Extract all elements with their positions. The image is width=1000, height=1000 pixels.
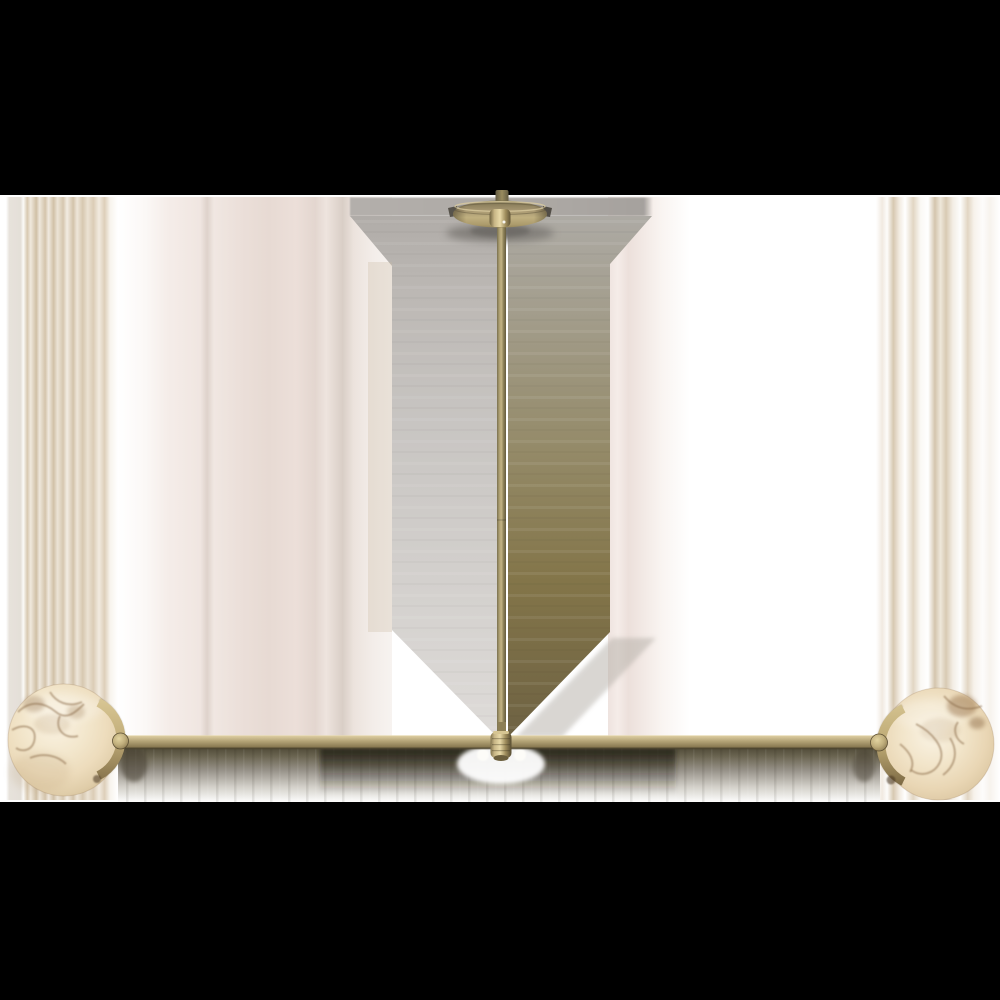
glow-spot-right [514, 749, 526, 761]
canopy-hub [490, 209, 511, 227]
downrod [497, 226, 506, 738]
globe-left-shade [10, 752, 70, 792]
connector-ridge [492, 738, 510, 739]
connector-ridge [492, 744, 510, 745]
product-image-stage [0, 0, 1000, 1000]
downrod-tube [497, 226, 506, 738]
downrod-seam [497, 519, 506, 521]
glow-spot-left [477, 749, 489, 761]
smear-stripes-right-field [608, 197, 690, 800]
globe-right-vein-blotch-2 [969, 717, 985, 729]
globe-right-vein-blotch-1 [947, 695, 977, 717]
bar-end-cap-right [871, 734, 888, 751]
bracket-left-tip-shadow [93, 775, 101, 783]
connector-bottom-cap [494, 755, 509, 761]
bar-end-shadow-left [121, 746, 147, 782]
bar-end-shadow-right [853, 750, 875, 782]
canopy-hub-specular [503, 221, 506, 224]
smear-tan-substripe [368, 262, 392, 632]
smear-stripes-blush-field [118, 197, 392, 800]
bracket-right-tip-shadow [887, 776, 896, 785]
chandelier-product-photo [0, 0, 1000, 1000]
photo-band [0, 190, 1000, 802]
globe-left-vein-blotch-3 [34, 714, 70, 734]
connector-top-flange [493, 731, 509, 734]
connector-ridge [492, 750, 510, 751]
bar-end-cap-left [113, 733, 129, 749]
